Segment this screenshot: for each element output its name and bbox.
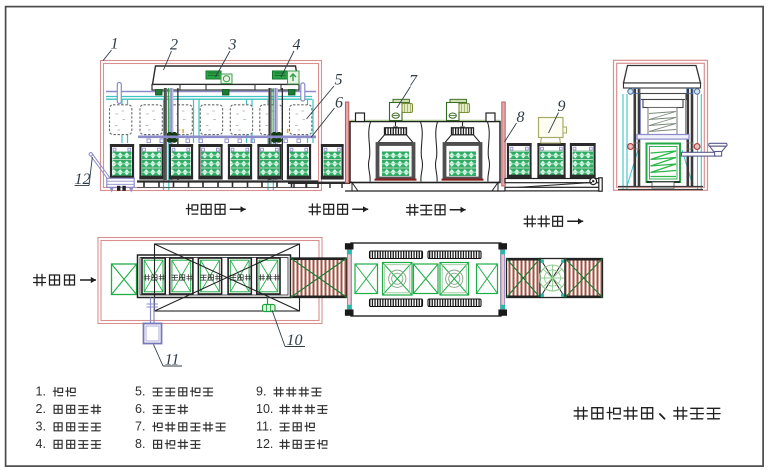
svg-text:12.: 12. [256,437,273,451]
svg-text:8: 8 [517,109,525,126]
svg-text:6: 6 [335,95,343,112]
svg-text:4.: 4. [36,437,46,451]
svg-text:7.: 7. [135,420,145,434]
svg-text:6.: 6. [135,402,145,416]
svg-text:9.: 9. [256,385,266,399]
svg-text:2.: 2. [36,402,46,416]
svg-text:8.: 8. [135,437,145,451]
svg-text:10.: 10. [256,402,273,416]
svg-text:11.: 11. [256,420,272,434]
svg-text:1: 1 [111,36,119,53]
svg-text:5: 5 [335,72,343,89]
svg-text:5.: 5. [135,385,145,399]
svg-text:3: 3 [228,37,237,54]
svg-text:9: 9 [558,98,566,115]
svg-text:1.: 1. [36,385,46,399]
svg-text:3.: 3. [36,420,46,434]
